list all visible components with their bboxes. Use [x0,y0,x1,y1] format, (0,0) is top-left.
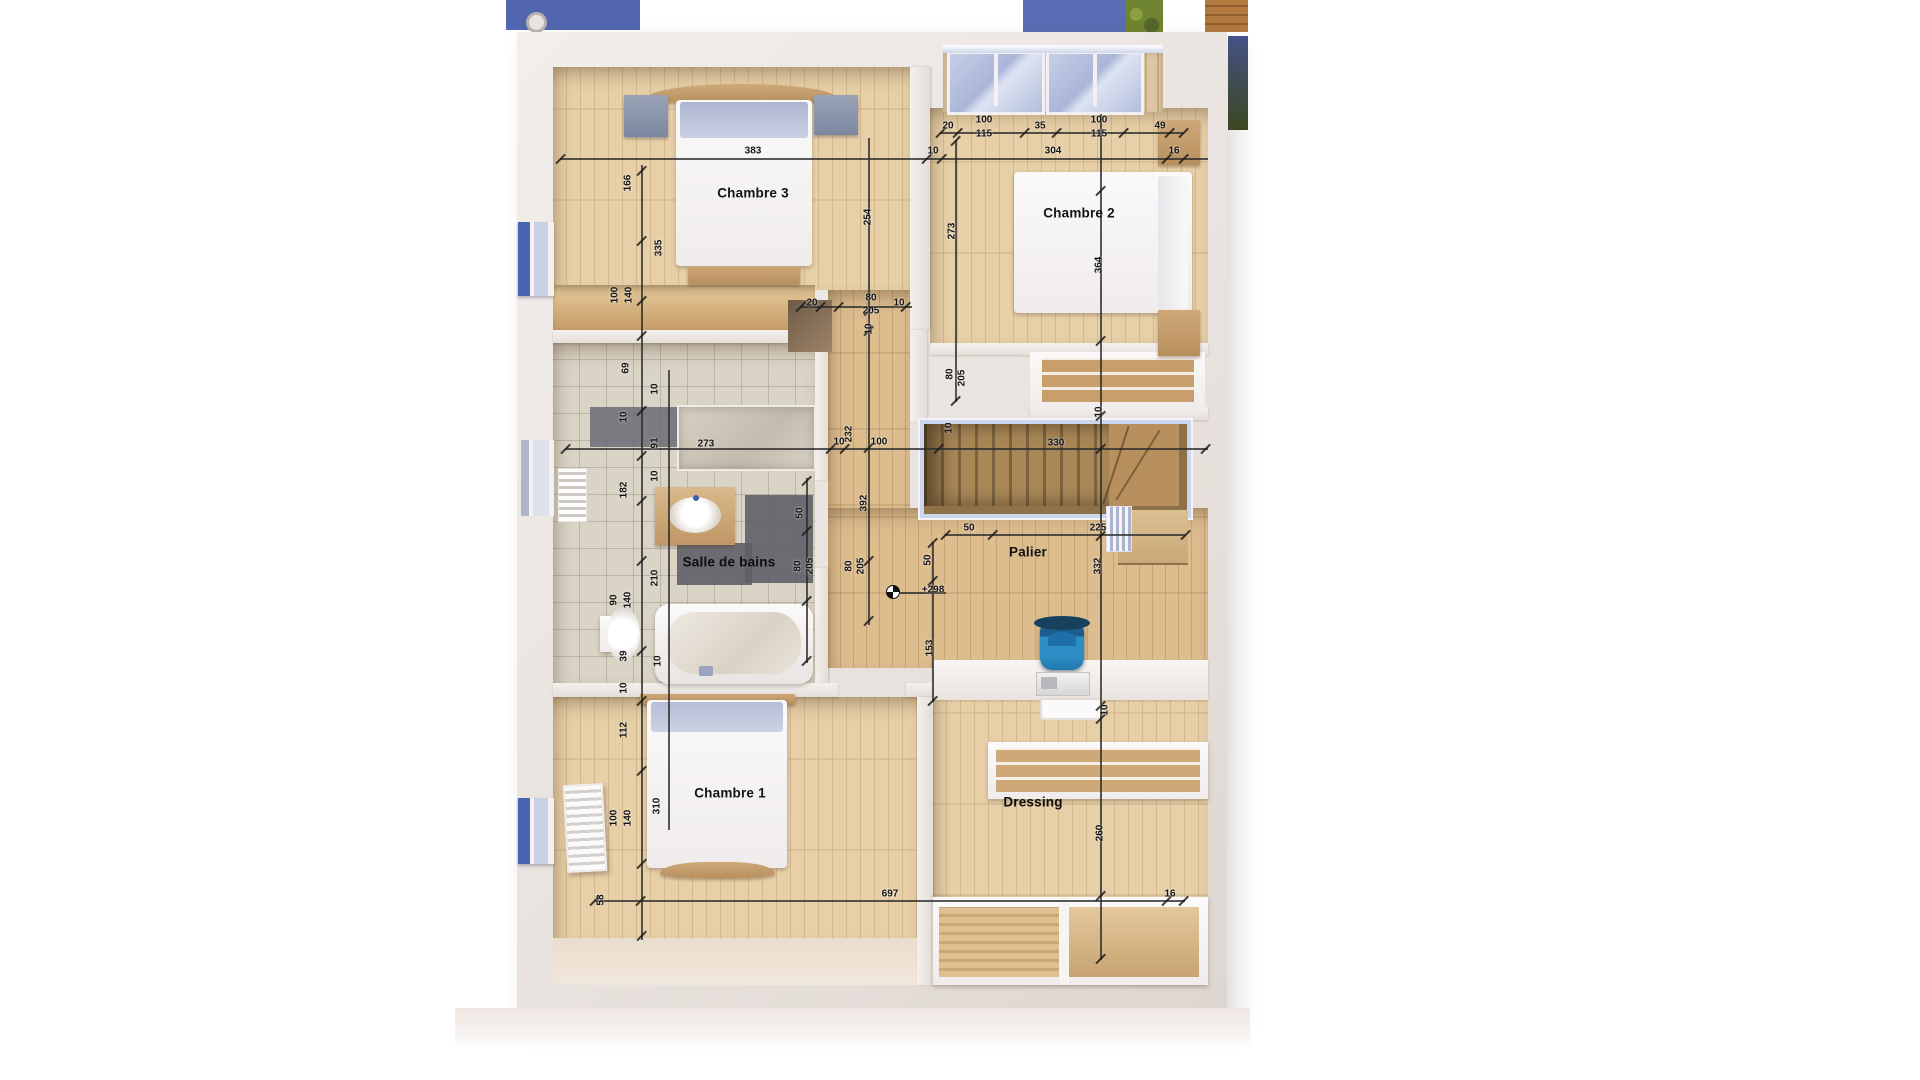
floor-plan-canvas: 3831030416201001153510011549166335100140… [0,0,1920,1080]
room-label: Palier [1009,545,1047,560]
room-label: Chambre 2 [1043,206,1115,221]
room-label: Dressing [1003,795,1062,810]
room-label: Chambre 1 [694,786,766,801]
room-label: Salle de bains [683,555,776,570]
room-labels: Chambre 3Chambre 2Salle de bainsPalierCh… [0,0,1920,1080]
room-label: Chambre 3 [717,186,789,201]
